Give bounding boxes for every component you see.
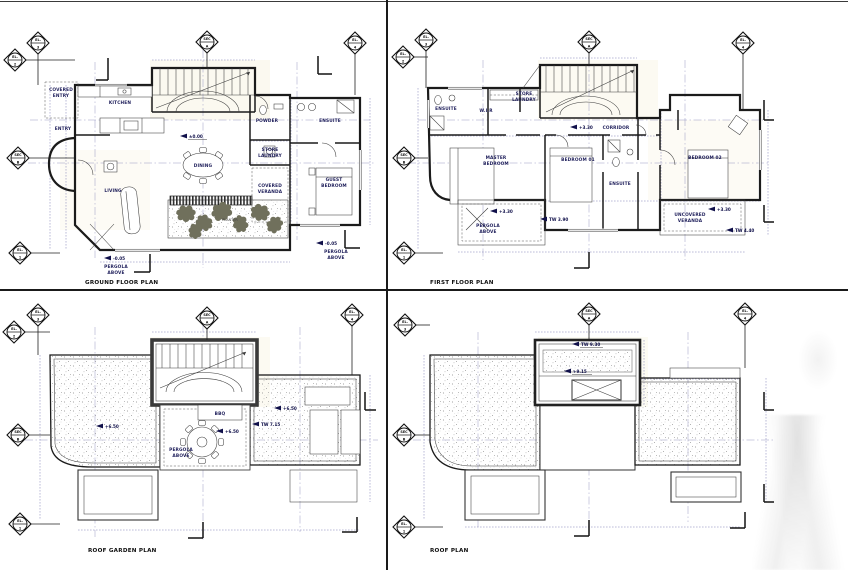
elevation-marker-4: EL. 4 [344,32,366,54]
bedroom-01-label: BEDROOM 01 [561,157,595,163]
planter-label: PLANTER [222,218,238,222]
drawing-sheet: SEC A EL. 3 EL. 2 EL. 4 SEC B EL. 1 COVE… [0,0,848,570]
elevation-marker-1: EL. 1 [393,242,415,264]
plan-title: ROOF PLAN [430,548,469,554]
level-veranda: +3.30 [717,207,731,212]
guest-bedroom-label: GUEST [326,177,343,183]
elevation-marker-2: EL. 2 [392,46,414,68]
pergola-terrace [160,405,250,470]
marker-text: A [588,317,591,321]
quadrant-divider-vertical [386,0,388,570]
marker-text: EL. [11,327,17,331]
plan-title: ROOF GARDEN PLAN [88,548,157,554]
level-corridor: +3.30 [579,125,593,130]
elevation-marker-1: EL. 1 [9,513,31,535]
pergola-note: ABOVE [327,255,344,261]
entry-label: ENTRY [55,126,72,132]
guest-bedroom-label: BEDROOM [321,183,347,189]
marker-text: EL. [35,310,41,314]
covered-veranda-label: COVERED [258,183,282,189]
marker-text: SEC [585,309,593,313]
section-marker-b: SEC B [393,147,415,169]
lower-boxes [465,470,741,520]
marker-text: SEC [585,37,593,41]
dining-label: DINING [194,163,213,169]
elevation-marker-3: EL. 3 [27,304,49,326]
elevation-marker-1: EL. 1 [393,516,415,538]
plan-title: FIRST FLOOR PLAN [430,280,494,286]
level-right: +6.50 [283,406,297,411]
scan-smudge [753,415,848,570]
store-laundry-label: LAUNDRY [512,97,537,103]
quadrant-divider-horizontal [0,289,848,291]
store-laundry-label: STORE [516,91,533,97]
marker-text: EL. [35,38,41,42]
section-marker-b: SEC B [7,424,29,446]
roof-left [430,355,540,470]
marker-text: SEC [400,430,408,434]
level-terrace: +6.50 [225,429,239,434]
store-laundry-label: STORE [262,147,279,153]
tw-pergola: TW 3.90 [549,217,568,222]
marker-text: B [17,161,20,165]
marker-text: EL. [401,248,407,252]
master-bedroom-label: BEDROOM [483,161,509,167]
plan-title: GROUND FLOOR PLAN [85,280,158,286]
pergola-label: PERGOLA [476,223,500,229]
marker-text: EL. [423,35,429,39]
covered-entry-label: COVERED [49,87,73,93]
section-marker-a: SEC A [578,303,600,325]
level-pergola: +3.30 [499,209,513,214]
corridor-label: CORRIDOR [603,125,630,131]
marker-text: EL. [12,55,18,59]
section-marker-a: SEC A [196,31,218,53]
tw-level: TW 7.15 [261,422,280,427]
living-label: LIVING [104,188,122,194]
marker-text: EL. [401,522,407,526]
planter-box [78,470,158,520]
marker-text: B [17,438,20,442]
marker-text: SEC [203,37,211,41]
covered-entry-label: ENTRY [53,93,70,99]
tw-level: TW 9.30 [581,342,600,347]
elevation-marker-2: EL. 2 [4,49,26,71]
section-marker-b: SEC B [393,424,415,446]
pergola-note: PERGOLA [104,264,128,270]
level-main: ±0.00 [189,134,203,139]
stair-bulkhead [535,340,640,405]
marker-text: SEC [400,153,408,157]
marker-text: A [588,45,591,49]
roof-level: +9.15 [573,369,587,374]
elevation-marker-4: EL. 4 [732,32,754,54]
section-marker-a: SEC A [578,31,600,53]
elevation-marker-2: EL. 2 [3,321,25,343]
roof-center-void [540,405,635,470]
powder-label: POWDER [256,118,279,124]
marker-text: SEC [14,153,22,157]
marker-text: A [206,45,209,49]
marker-text: EL. [352,38,358,42]
scan-smudge [798,330,838,390]
roof-right-strip [670,368,740,378]
ensuite-label: ENSUITE [609,181,631,187]
pergola-note: ABOVE [107,270,124,276]
master-bedroom-label: MASTER [486,155,507,161]
guest-bed [309,168,352,215]
section-marker-b: SEC B [7,147,29,169]
level-left: +6.50 [105,424,119,429]
ensuite-label: ENSUITE [435,106,457,112]
marker-text: B [403,161,406,165]
marker-text: EL. [17,519,23,523]
level-left: -0.05 [113,256,125,261]
elevation-marker-3: EL. 3 [415,29,437,51]
pergola-label: PERGOLA [169,447,193,453]
roof-garden-plan: SEC A EL. 3 EL. 2 EL. 4 SEC B EL. 1 BBQ … [0,292,388,570]
marker-text: EL. [17,248,23,252]
tw-veranda: TW 4.40 [735,228,754,233]
pergola-label: ABOVE [479,229,496,235]
marker-text: SEC [14,430,22,434]
pergola-terrace [458,200,545,245]
bbq-label: BBQ [215,411,226,417]
level-right: -0.05 [325,241,337,246]
bedroom-02-label: BEDROOM 02 [688,155,722,161]
elevation-marker-4: EL. 4 [341,304,363,326]
elevation-marker-4: EL. 4 [734,303,756,325]
covered-veranda-label: VERANDA [258,189,283,195]
roof-terrace-left [50,355,160,467]
sheet-top-edge [0,1,848,2]
ensuite-label: ENSUITE [319,118,341,124]
wir-label: W.I.R [479,108,493,114]
roof-right [635,378,740,465]
marker-text: B [403,438,406,442]
elevation-marker-3: EL. 3 [27,32,49,54]
stair-enclosure [152,340,257,405]
uncovered-veranda-label: UNCOVERED [674,212,705,218]
coffee-table [104,161,117,172]
elevation-marker-3: EL. 3 [394,314,416,336]
marker-text: EL. [349,310,355,314]
uncovered-veranda-label: VERANDA [678,218,703,224]
pergola-label: ABOVE [172,453,189,459]
marker-text: EL. [740,38,746,42]
marker-text: A [206,321,209,325]
marker-text: EL. [742,309,748,313]
kitchen-label: KITCHEN [109,100,131,106]
pergola-note: PERGOLA [324,249,348,255]
marker-text: SEC [203,313,211,317]
ground-floor-plan: SEC A EL. 3 EL. 2 EL. 4 SEC B EL. 1 COVE… [0,0,388,290]
scan-tint [538,60,658,120]
first-floor-plan: SEC A EL. 3 EL. 2 EL. 4 SEC B EL. 1 ENSU… [388,0,848,290]
elevation-marker-1: EL. 1 [9,242,31,264]
store-laundry-label: LAUNDRY [258,153,283,159]
section-marker-a: SEC A [196,307,218,329]
marker-text: EL. [400,52,406,56]
marker-text: EL. [402,320,408,324]
